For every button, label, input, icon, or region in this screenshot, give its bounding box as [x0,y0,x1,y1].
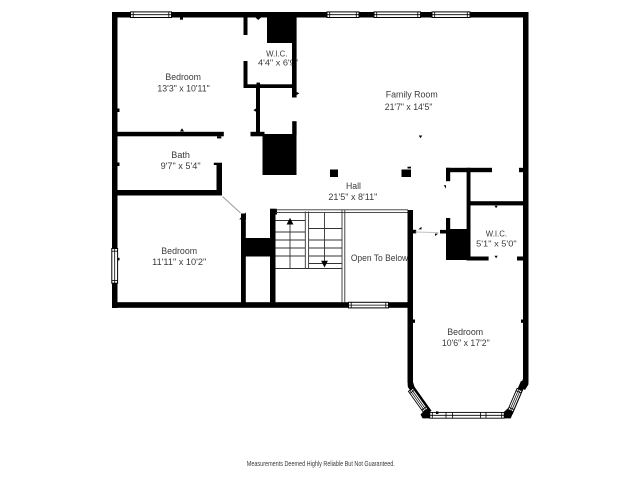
svg-text:Bedroom: Bedroom [447,327,483,337]
svg-text:13'3" x 10'11": 13'3" x 10'11" [157,84,209,94]
svg-text:5'1" x 5'0": 5'1" x 5'0" [476,239,517,249]
svg-text:Family Room: Family Room [386,89,438,99]
svg-text:Measurements Deemed Highly Rel: Measurements Deemed Highly Reliable But … [247,459,395,468]
svg-text:Bedroom: Bedroom [165,72,201,82]
svg-text:21'7" x 14'5": 21'7" x 14'5" [385,102,433,112]
svg-text:Open To Below: Open To Below [351,253,409,263]
svg-text:Bath: Bath [171,150,190,160]
svg-text:11'11" x 10'2": 11'11" x 10'2" [152,257,206,267]
svg-text:9'7" x 5'4": 9'7" x 5'4" [161,161,201,171]
svg-text:Bedroom: Bedroom [161,246,197,256]
svg-text:10'6" x 17'2": 10'6" x 17'2" [442,338,490,348]
svg-text:Hall: Hall [346,181,361,191]
svg-text:W.I.C.: W.I.C. [486,228,507,238]
svg-text:21'5" x 8'11": 21'5" x 8'11" [328,192,377,202]
